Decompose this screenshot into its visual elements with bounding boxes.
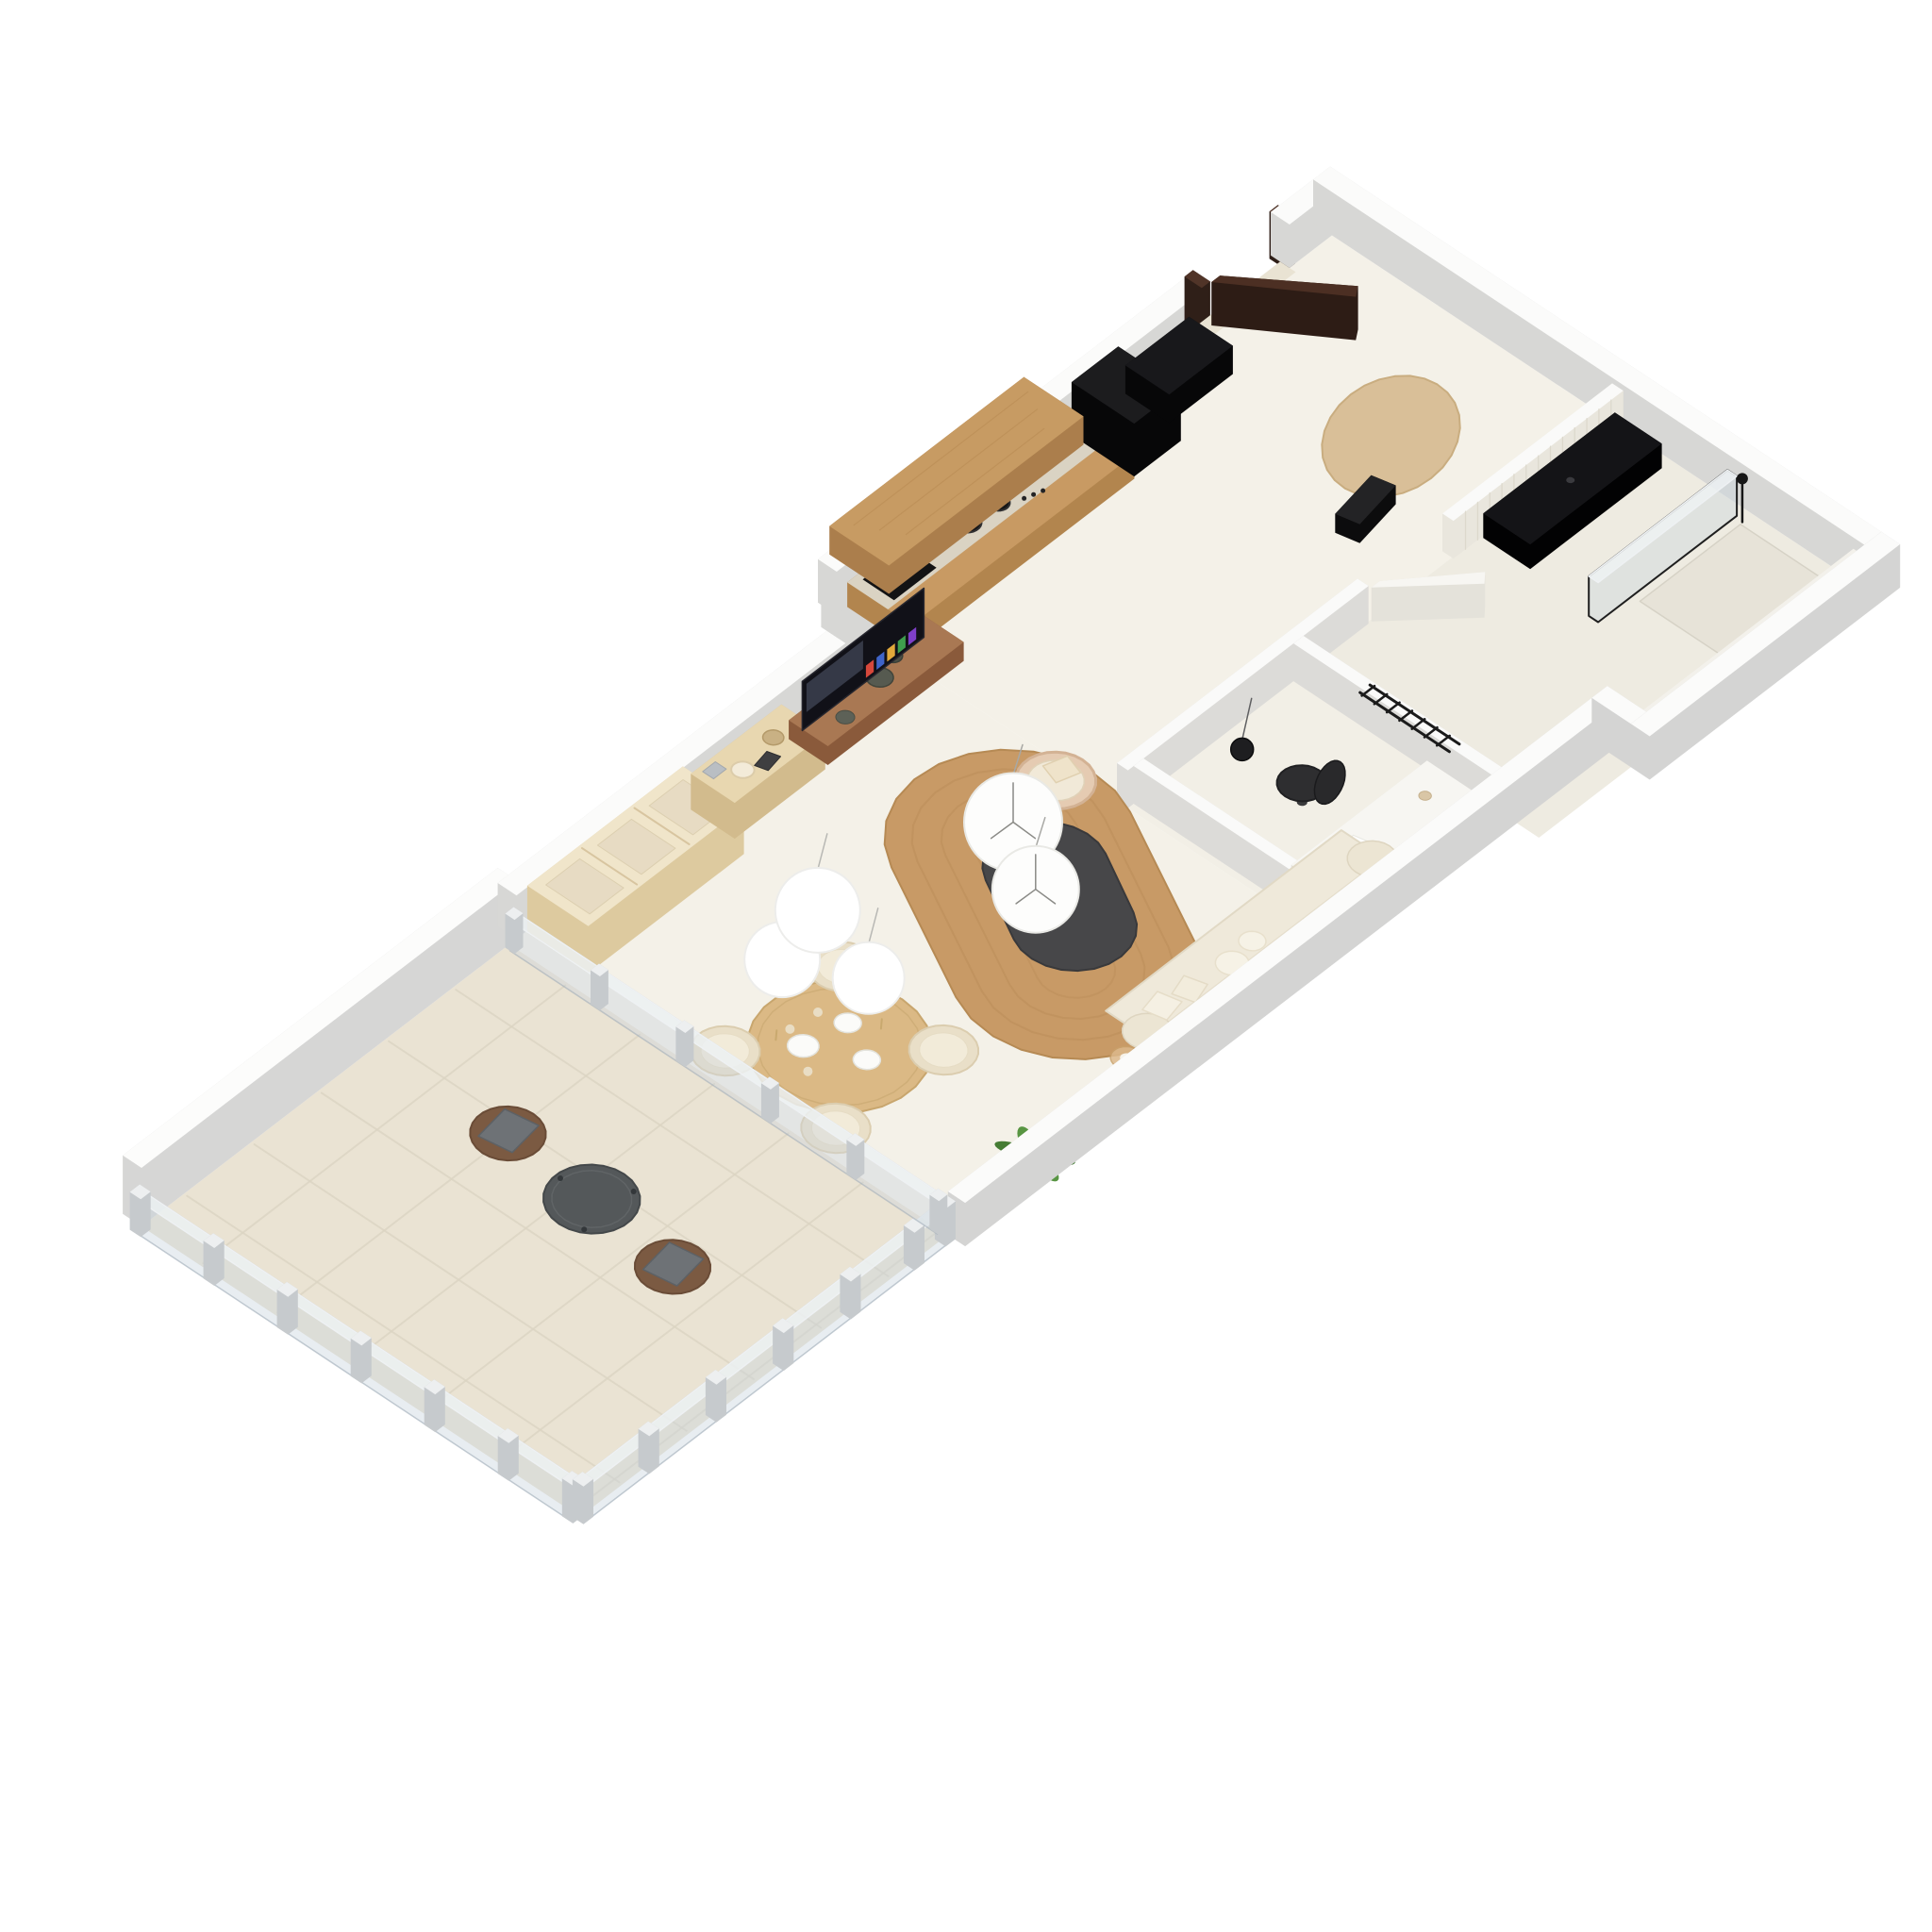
shower-head	[1737, 473, 1748, 484]
shelf-lamp	[731, 761, 754, 778]
dining-chair-3	[909, 1025, 978, 1074]
terrace-side-table	[543, 1165, 640, 1234]
dining-plate-1	[788, 1035, 819, 1058]
shelf-basket	[763, 730, 784, 745]
office-desk-cup	[1419, 791, 1431, 801]
dining-plate-2	[834, 1013, 861, 1033]
dining-plate-3	[853, 1050, 880, 1070]
console-sphere	[836, 710, 855, 724]
floor-plan-render	[0, 0, 1932, 1932]
sofa-round-pillow-2	[1239, 931, 1266, 951]
floor-plan-svg	[0, 0, 1932, 1932]
